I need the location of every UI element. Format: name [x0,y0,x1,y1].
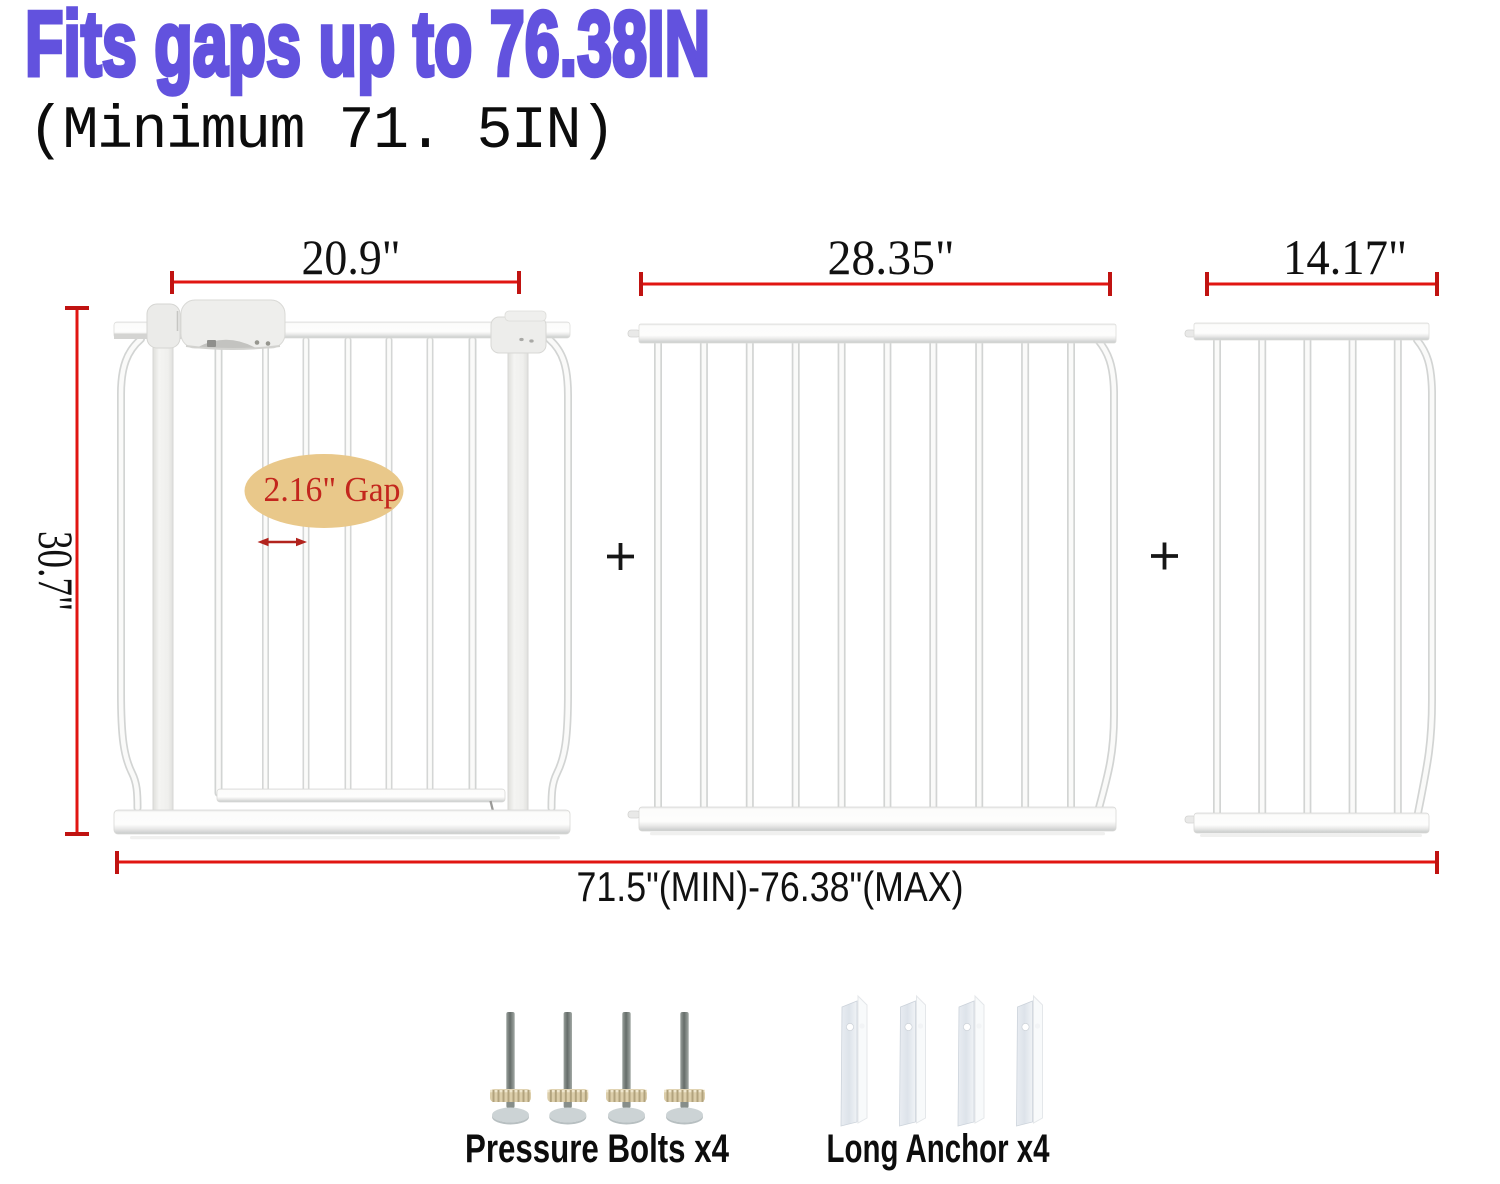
svg-text:71.5"(MIN)-76.38"(MAX): 71.5"(MIN)-76.38"(MAX) [577,863,964,910]
svg-text:Fits gaps up to 76.38IN: Fits gaps up to 76.38IN [25,0,710,95]
svg-text:28.35": 28.35" [828,229,955,285]
svg-text:Long Anchor x4: Long Anchor x4 [827,1127,1051,1171]
svg-text:2.16" Gap: 2.16" Gap [264,471,401,509]
svg-text:14.17": 14.17" [1283,229,1407,285]
svg-text:30.7": 30.7" [28,531,84,611]
svg-text:Pressure Bolts x4: Pressure Bolts x4 [465,1127,730,1171]
svg-text:(Minimum 71. 5IN): (Minimum 71. 5IN) [28,98,616,166]
svg-text:20.9": 20.9" [302,229,401,285]
